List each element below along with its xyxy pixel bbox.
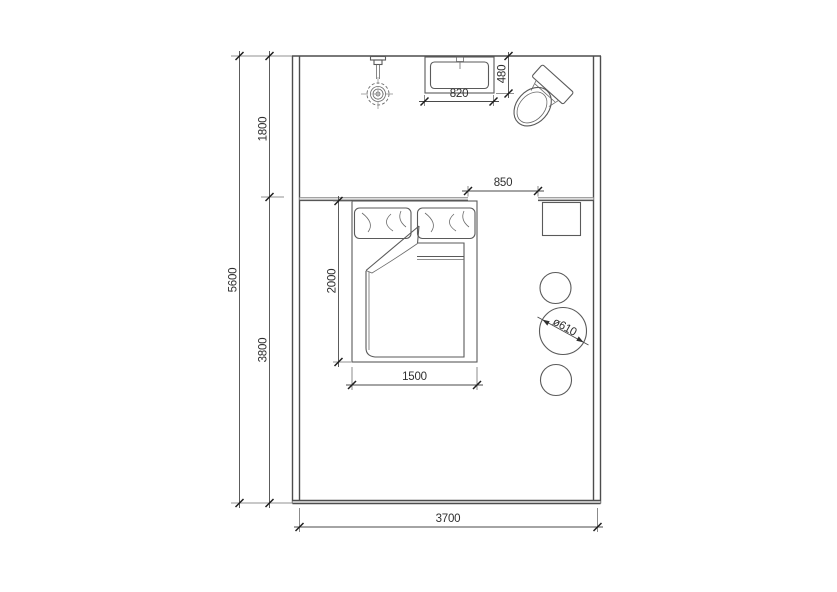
stool-bottom	[541, 365, 572, 396]
dim-label-basin-width: 820	[450, 88, 469, 100]
dim-label-upper-zone: 1800	[258, 117, 270, 142]
dim-bed-width: 1500	[346, 367, 483, 390]
shower-holder	[374, 60, 382, 65]
dim-label-opening-width: 850	[494, 177, 513, 189]
floor-plan-canvas: ø610 5600 1800 3800 3700 820	[0, 0, 837, 592]
floor-plan-page: ø610 5600 1800 3800 3700 820	[0, 0, 837, 592]
dim-label-bed-length: 2000	[327, 269, 339, 294]
round-stools	[540, 273, 587, 396]
toilet	[503, 64, 574, 136]
dim-label-overall-depth: 5600	[228, 268, 240, 293]
pillow-left	[355, 208, 412, 239]
dim-opening-width: 850	[462, 177, 544, 197]
dim-basin-width: 820	[419, 88, 499, 106]
dim-basin-depth: 480	[496, 52, 514, 98]
stool-top	[540, 273, 571, 304]
shower-head-icon	[361, 77, 395, 111]
dim-table-diameter: ø610	[538, 316, 589, 345]
basin-faucet-icon	[457, 57, 464, 62]
partition-wall	[300, 198, 594, 201]
dim-overall-width: 3700	[294, 508, 603, 532]
dim-label-basin-depth: 480	[497, 65, 509, 84]
bed-blanket	[366, 226, 464, 357]
dim-label-overall-width: 3700	[436, 513, 461, 525]
dim-label-table-diameter: ø610	[550, 316, 578, 339]
dim-label-lower-zone: 3800	[258, 338, 270, 363]
dim-zone-depths: 1800 3800	[258, 51, 285, 508]
nightstand	[543, 203, 581, 236]
toilet-bowl	[506, 80, 559, 133]
double-bed	[352, 201, 477, 362]
dim-label-bed-width: 1500	[402, 371, 427, 383]
toilet-tank	[532, 64, 574, 104]
shower-fixture	[361, 57, 395, 112]
dim-bed-length: 2000	[327, 196, 352, 367]
pillow-right	[418, 208, 476, 239]
